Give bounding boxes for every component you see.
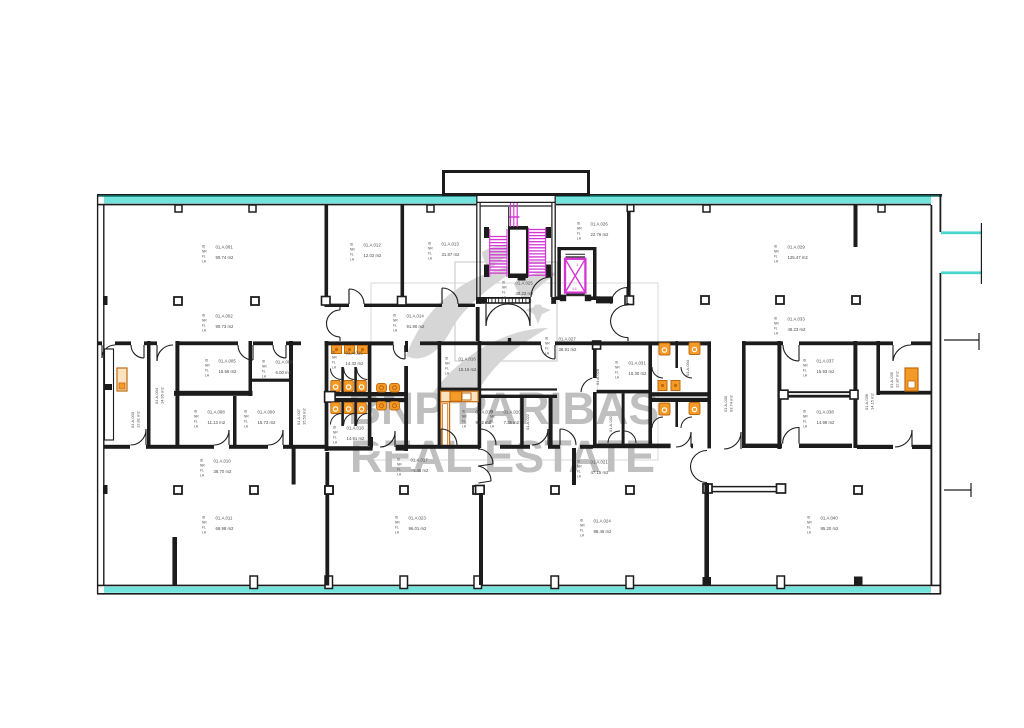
svg-text:9.82 m2: 9.82 m2 [476, 420, 492, 425]
svg-text:01.A.036: 01.A.036 [864, 393, 869, 410]
svg-text:NR: NR [615, 366, 620, 370]
svg-text:01.A.028: 01.A.028 [595, 368, 600, 385]
svg-text:LH: LH [502, 296, 507, 300]
svg-text:LH: LH [428, 257, 433, 261]
svg-text:91.90 m2: 91.90 m2 [407, 324, 426, 329]
svg-text:15.50 m2: 15.50 m2 [302, 408, 307, 425]
svg-text:01.A.007: 01.A.007 [296, 408, 301, 425]
svg-text:12.87 m2: 12.87 m2 [895, 371, 900, 388]
svg-text:LH: LH [395, 531, 400, 535]
svg-text:01.A.032: 01.A.032 [608, 415, 613, 432]
svg-text:FL: FL [807, 526, 811, 530]
svg-text:FL: FL [393, 324, 397, 328]
svg-text:LH: LH [580, 534, 585, 538]
svg-text:FL: FL [202, 324, 206, 328]
svg-text:FL: FL [462, 420, 466, 424]
svg-text:15.73 m2: 15.73 m2 [258, 420, 277, 425]
svg-text:NR: NR [202, 319, 207, 323]
svg-text:NR: NR [333, 431, 338, 435]
svg-text:NR: NR [205, 364, 210, 368]
svg-text:LH: LH [445, 372, 450, 376]
svg-text:10.30 m2: 10.30 m2 [629, 371, 648, 376]
svg-text:FL: FL [502, 291, 506, 295]
svg-text:01.A.021: 01.A.021 [591, 460, 609, 465]
svg-text:01.A.029: 01.A.029 [788, 245, 806, 250]
svg-text:LH: LH [577, 475, 582, 479]
svg-text:01.A.003: 01.A.003 [130, 411, 135, 428]
svg-text:LH: LH [577, 237, 582, 241]
svg-text:LH: LH [774, 260, 779, 264]
svg-text:01.A.008: 01.A.008 [208, 410, 226, 415]
svg-text:NR: NR [462, 415, 467, 419]
svg-text:01.A.010: 01.A.010 [214, 459, 232, 464]
svg-text:LH: LH [200, 474, 205, 478]
svg-text:01.A.005: 01.A.005 [219, 359, 237, 364]
svg-text:NR: NR [580, 524, 585, 528]
svg-text:15.93 m2: 15.93 m2 [817, 369, 836, 374]
svg-text:14.15 m2: 14.15 m2 [870, 393, 875, 410]
svg-text:LH: LH [807, 531, 812, 535]
svg-text:NR: NR [395, 521, 400, 525]
svg-text:FL: FL [545, 347, 549, 351]
svg-text:LH: LH [244, 425, 249, 429]
svg-text:LH: LH [545, 352, 550, 356]
svg-text:FL: FL [445, 367, 449, 371]
svg-text:LH: LH [332, 366, 337, 370]
svg-text:LH: LH [333, 441, 338, 445]
svg-text:NR: NR [445, 362, 450, 366]
svg-text:01.A.011: 01.A.011 [216, 516, 233, 521]
svg-text:7.35 m2: 7.35 m2 [504, 420, 520, 425]
svg-text:FL: FL [577, 232, 581, 236]
svg-text:FL: FL [803, 369, 807, 373]
svg-text:NR: NR [803, 364, 808, 368]
svg-text:49.23 m2: 49.23 m2 [788, 327, 807, 332]
svg-text:LH: LH [803, 425, 808, 429]
svg-text:LH: LH [615, 376, 620, 380]
svg-text:14.95 m2: 14.95 m2 [160, 387, 165, 404]
svg-text:69.98 m2: 69.98 m2 [216, 526, 235, 531]
svg-text:01.A.017: 01.A.017 [411, 458, 429, 463]
svg-text:FL: FL [615, 371, 619, 375]
svg-text:01.A.004: 01.A.004 [154, 387, 159, 404]
svg-text:LH: LH [202, 531, 207, 535]
svg-text:01.A.033: 01.A.033 [788, 317, 806, 322]
svg-text:90.73 m2: 90.73 m2 [216, 324, 235, 329]
svg-text:6.00 m2: 6.00 m2 [276, 370, 292, 375]
svg-text:125.47 m2: 125.47 m2 [788, 255, 809, 260]
svg-text:LH: LH [202, 329, 207, 333]
svg-text:01.A.025: 01.A.025 [516, 281, 534, 286]
svg-text:01.A.012: 01.A.012 [364, 243, 382, 248]
svg-text:FL: FL [350, 253, 354, 257]
svg-text:01.A.018: 01.A.018 [347, 426, 365, 431]
svg-text:FL: FL [202, 526, 206, 530]
svg-text:FL: FL [333, 436, 337, 440]
svg-text:LH: LH [803, 374, 808, 378]
svg-text:99.46 m2: 99.46 m2 [411, 468, 430, 473]
svg-text:01.A.035: 01.A.035 [889, 371, 894, 388]
svg-text:FL: FL [200, 469, 204, 473]
svg-text:LH: LH [350, 258, 355, 262]
svg-text:FL: FL [262, 370, 266, 374]
svg-text:NR: NR [332, 356, 337, 360]
svg-text:NR: NR [545, 342, 550, 346]
svg-text:01.A.024: 01.A.024 [594, 519, 612, 524]
svg-text:31.87 m2: 31.87 m2 [442, 252, 461, 257]
svg-text:FL: FL [395, 526, 399, 530]
svg-text:01.A.026: 01.A.026 [591, 222, 609, 227]
svg-text:NR: NR [350, 248, 355, 252]
svg-text:14.32 m2: 14.32 m2 [346, 361, 365, 366]
svg-text:NR: NR [262, 365, 267, 369]
svg-text:15.16 m2: 15.16 m2 [459, 367, 478, 372]
svg-text:01.A.014: 01.A.014 [407, 314, 425, 319]
svg-text:LH: LH [490, 425, 495, 429]
svg-text:12.81 m2: 12.81 m2 [136, 411, 141, 428]
svg-text:01.A.013: 01.A.013 [442, 242, 460, 247]
svg-text:FL: FL [332, 361, 336, 365]
svg-text:NR: NR [577, 465, 582, 469]
svg-text:NR: NR [502, 286, 507, 290]
svg-text:FL: FL [577, 470, 581, 474]
svg-text:NR: NR [202, 521, 207, 525]
svg-text:01.A.040: 01.A.040 [821, 516, 839, 521]
svg-text:FL: FL [397, 468, 401, 472]
svg-text:11.13 m2: 11.13 m2 [208, 420, 226, 425]
svg-text:FL: FL [428, 252, 432, 256]
svg-text:01.A.020: 01.A.020 [504, 410, 522, 415]
svg-text:98.46 m2: 98.46 m2 [594, 529, 613, 534]
svg-text:FL: FL [774, 327, 778, 331]
svg-text:38.23 m2: 38.23 m2 [516, 291, 535, 296]
svg-text:38.91 m2: 38.91 m2 [559, 347, 578, 352]
svg-text:FL: FL [803, 420, 807, 424]
svg-text:LH: LH [397, 473, 402, 477]
svg-text:93.74 m2: 93.74 m2 [729, 395, 734, 412]
svg-text:LH: LH [262, 375, 267, 379]
svg-text:FL: FL [194, 420, 198, 424]
svg-text:NR: NR [397, 463, 402, 467]
svg-text:FL: FL [774, 255, 778, 259]
svg-text:NR: NR [428, 247, 433, 251]
svg-text:NR: NR [803, 415, 808, 419]
svg-text:NR: NR [244, 415, 249, 419]
svg-text:NR: NR [774, 250, 779, 254]
svg-text:LH: LH [202, 260, 207, 264]
svg-text:01.A.016: 01.A.016 [459, 357, 477, 362]
svg-text:01.A.030: 01.A.030 [723, 395, 728, 412]
svg-text:14.91 m2: 14.91 m2 [347, 436, 366, 441]
svg-text:NR: NR [490, 415, 495, 419]
svg-text:01.A.015: 01.A.015 [346, 351, 364, 356]
svg-text:01.A.009: 01.A.009 [258, 410, 276, 415]
svg-text:NR: NR [774, 322, 779, 326]
svg-text:01.A.027: 01.A.027 [559, 337, 577, 342]
svg-text:01.A.038: 01.A.038 [817, 410, 835, 415]
svg-text:15.56 m2: 15.56 m2 [219, 369, 238, 374]
svg-text:95.20 m2: 95.20 m2 [821, 526, 840, 531]
svg-text:LH: LH [462, 425, 467, 429]
svg-text:01.A.031: 01.A.031 [629, 361, 647, 366]
svg-text:14.98 m2: 14.98 m2 [817, 420, 836, 425]
svg-text:90.74 m2: 90.74 m2 [216, 255, 235, 260]
svg-text:L1: L1 [573, 286, 578, 291]
svg-text:NR: NR [202, 250, 207, 254]
svg-text:01.A.023: 01.A.023 [409, 516, 427, 521]
svg-text:FL: FL [244, 420, 248, 424]
svg-text:FL: FL [490, 420, 494, 424]
svg-text:38.70 m2: 38.70 m2 [214, 469, 233, 474]
svg-text:01.A.034: 01.A.034 [685, 359, 690, 376]
svg-text:01.A.002: 01.A.002 [216, 314, 234, 319]
svg-text:47.15 m2: 47.15 m2 [591, 470, 610, 475]
svg-text:NR: NR [807, 521, 812, 525]
svg-text:FL: FL [580, 529, 584, 533]
svg-text:01.A.001: 01.A.001 [216, 245, 234, 250]
svg-text:96.01 m2: 96.01 m2 [409, 526, 428, 531]
svg-text:22.76 m2: 22.76 m2 [591, 232, 610, 237]
svg-text:01.A.022: 01.A.022 [525, 413, 530, 430]
svg-text:01.A.037: 01.A.037 [817, 359, 835, 364]
svg-text:LH: LH [205, 374, 210, 378]
svg-text:01.A.006: 01.A.006 [276, 360, 294, 365]
svg-text:NR: NR [194, 415, 199, 419]
svg-text:NR: NR [393, 319, 398, 323]
svg-text:LH: LH [393, 329, 398, 333]
svg-text:FL: FL [205, 369, 209, 373]
svg-text:LH: LH [774, 332, 779, 336]
svg-text:LH: LH [194, 425, 199, 429]
svg-text:NR: NR [200, 464, 205, 468]
svg-text:NR: NR [577, 227, 582, 231]
svg-text:12.02 m2: 12.02 m2 [364, 253, 383, 258]
svg-text:FL: FL [202, 255, 206, 259]
